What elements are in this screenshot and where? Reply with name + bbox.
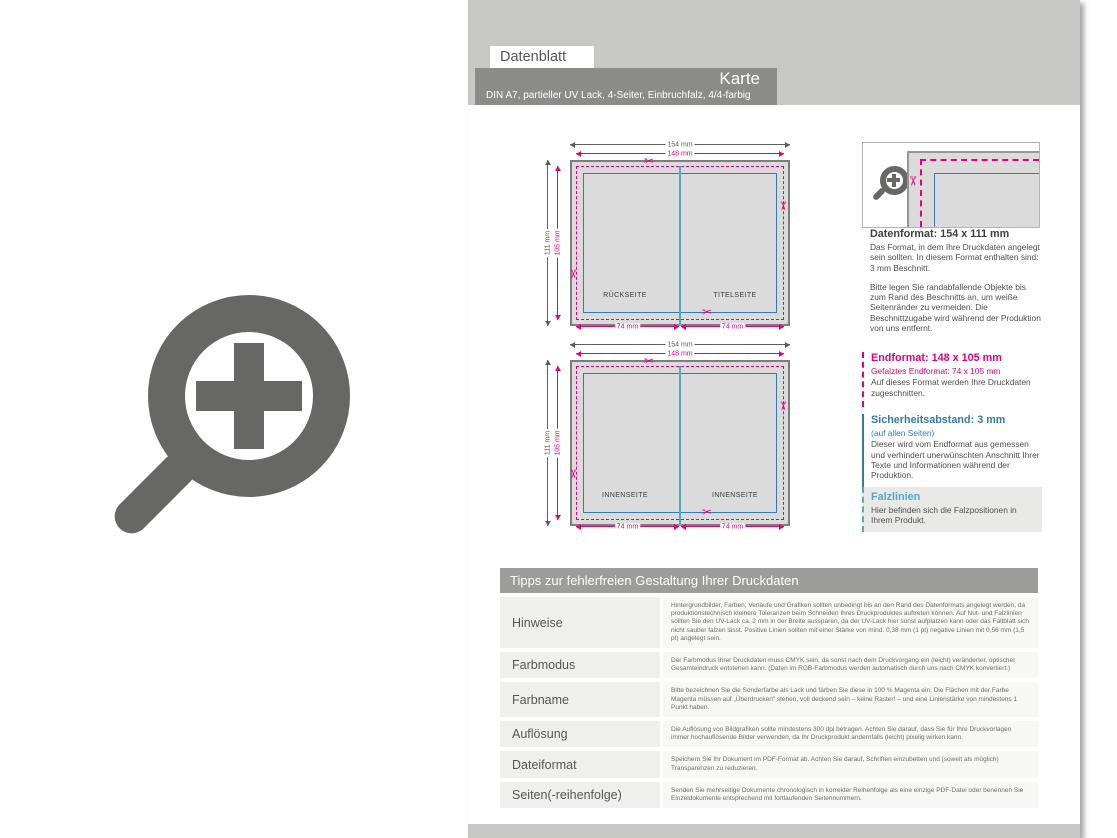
magnifier-handle [108,446,203,541]
detail-cut-line [920,159,1039,161]
table-row: Seiten(-reihenfolge) Senden Sie mehrseit… [500,782,1038,808]
section-text: Bitte legen Sie randabfallende Objekte b… [870,282,1042,333]
format-diagram-inner-pages: 154 mm 148 mm 111 mm 105 mm 74 mm 74 mm … [540,342,790,542]
row-label: Auflösung [500,721,660,747]
page-label-rueckseite: RÜCKSEITE [570,292,680,299]
scissors-icon: ✂ [777,401,789,411]
page-label-innenseite: INNENSEITE [680,492,790,499]
datenblatt-tab: Datenblatt [490,46,594,68]
section-heading: Endformat: 148 x 105 mm [871,352,1042,364]
dimension-74mm-left: 74 mm [576,326,679,327]
table-row: Hinweise Hintergrundbilder, Farben, Verl… [500,597,1038,648]
scissors-icon: ✂ [702,306,712,318]
page-subtitle: DIN A7, partieller UV Lack, 4-Seiter, Ei… [486,90,751,101]
fold-line [679,166,681,326]
scissors-icon: ✂ [904,176,920,187]
scissors-icon: ✂ [644,155,654,167]
section-heading: Datenformat: 154 x 111 mm [870,228,1042,240]
section-subheading: (auf allen Seiten) [871,428,1042,438]
row-text: Speichern Sie Ihr Dokument im PDF-Format… [663,751,1038,777]
dimension-105mm: 105 mm [557,166,558,320]
section-text: Dieser wird vom Endformat aus gemessen u… [871,439,1042,480]
scissors-icon: ✂ [567,469,579,479]
scissors-icon: ✂ [644,355,654,367]
zoom-detail-box: ✂ [862,142,1040,228]
detail-safety-line [934,173,1039,174]
table-row: Dateiformat Speichern Sie Ihr Dokument i… [500,751,1038,777]
page-title: Karte [719,69,760,89]
section-text: Hier befinden sich die Falzpositionen in… [871,505,1038,526]
row-label: Dateiformat [500,751,660,777]
row-label: Farbmodus [500,652,660,678]
detail-card-corner [907,151,1039,227]
magnifier-handle [872,187,886,201]
row-text: Der Farbmodus Ihrer Druckdaten muss CMYK… [663,652,1038,678]
dimension-154mm: 154 mm [570,344,790,345]
page-label-titelseite: TITELSEITE [680,292,790,299]
datasheet-page: Datenblatt Karte DIN A7, partieller UV L… [468,0,1080,838]
row-label: Seiten(-reihenfolge) [500,782,660,808]
row-text: Bitte bezeichnen Sie die Sonderfarbe als… [663,682,1038,717]
section-endformat: Endformat: 148 x 105 mm Gefalztes Endfor… [862,352,1042,407]
tips-table: Tipps zur fehlerfreien Gestaltung Ihrer … [500,568,1038,808]
scissors-icon: ✂ [567,269,579,279]
tips-title: Tipps zur fehlerfreien Gestaltung Ihrer … [500,568,1038,593]
scissors-icon: ✂ [702,506,712,518]
dimension-74mm-left: 74 mm [576,526,679,527]
row-label: Farbname [500,682,660,717]
section-heading: Falzlinien [871,491,1038,503]
row-label: Hinweise [500,597,660,648]
table-row: Farbmodus Der Farbmodus Ihrer Druckdaten… [500,652,1038,678]
dimension-154mm: 154 mm [570,144,790,145]
dimension-111mm: 111 mm [547,360,548,526]
detail-safety-line [934,173,935,227]
table-row: Auflösung Die Auflösung von Bildgrafiken… [500,721,1038,747]
row-text: Hintergrundbilder, Farben, Verläufe und … [663,597,1038,648]
format-diagram-outer-pages: 154 mm 148 mm 111 mm 105 mm 74 mm 74 mm … [540,142,790,342]
dimension-105mm: 105 mm [557,366,558,520]
dimension-148mm: 148 mm [576,153,784,154]
plus-icon [892,174,896,187]
section-heading: Sicherheitsabstand: 3 mm [871,414,1042,426]
fold-line [679,366,681,526]
section-text: Auf dieses Format werden Ihre Druckdaten… [871,377,1042,398]
detail-cut-line [920,159,922,227]
section-sicherheitsabstand: Sicherheitsabstand: 3 mm (auf allen Seit… [862,414,1042,489]
page-label-innenseite: INNENSEITE [570,492,680,499]
dimension-74mm-right: 74 mm [681,326,784,327]
dimension-148mm: 148 mm [576,353,784,354]
dimension-111mm: 111 mm [547,160,548,326]
row-text: Senden Sie mehrseitige Dokumente chronol… [663,782,1038,808]
zoom-icon [100,280,360,565]
table-row: Farbname Bitte bezeichnen Sie die Sonder… [500,682,1038,717]
desktop: { "header": { "tab": "Datenblatt", "titl… [0,0,1117,838]
scissors-icon: ✂ [777,201,789,211]
row-text: Die Auflösung von Bildgrafiken sollte mi… [663,721,1038,747]
section-subheading: Gefalztes Endformat: 74 x 105 mm [871,366,1042,376]
plus-icon [234,343,264,449]
section-datenformat: Datenformat: 154 x 111 mm Das Format, in… [862,228,1042,342]
dimension-74mm-right: 74 mm [681,526,784,527]
title-bar: Karte DIN A7, partieller UV Lack, 4-Seit… [475,68,777,105]
section-falzlinien: Falzlinien Hier befinden sich die Falzpo… [862,487,1042,532]
section-text: Das Format, in dem Ihre Druckdaten angel… [870,242,1042,273]
footer-band [468,824,1080,838]
